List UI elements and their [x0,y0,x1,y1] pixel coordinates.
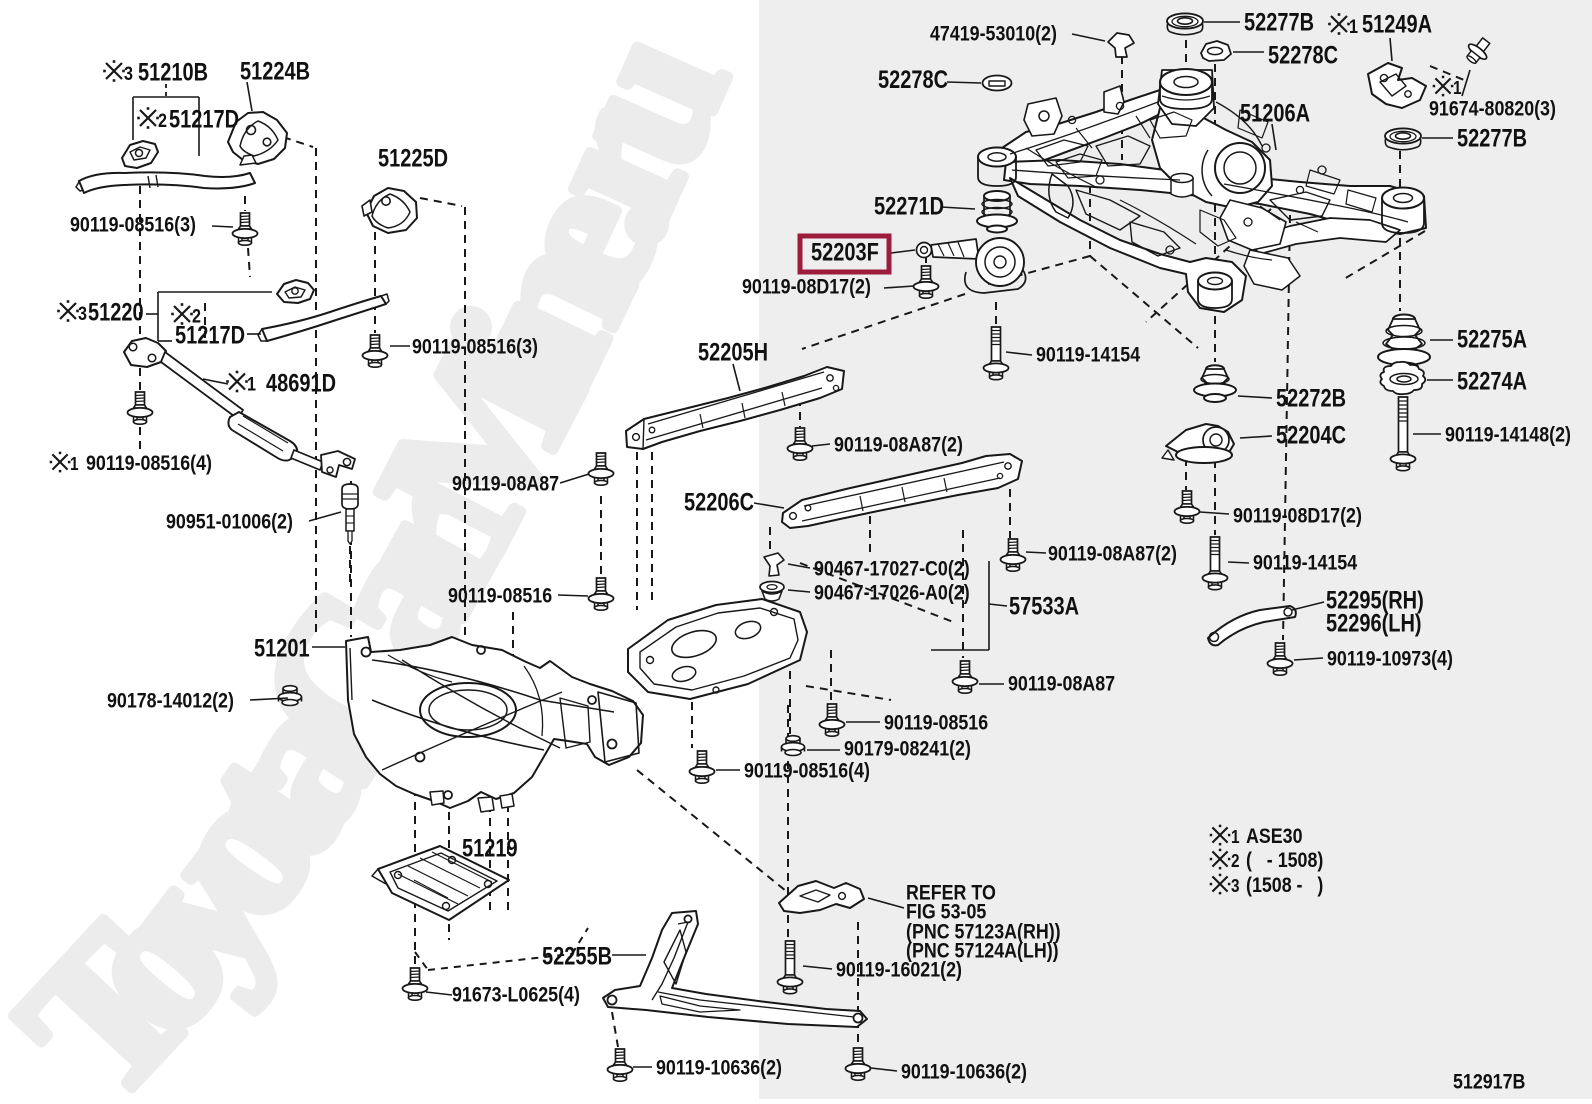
svg-text:52203F: 52203F [811,238,879,266]
svg-text:51201: 51201 [254,634,310,662]
svg-text:52277B: 52277B [1244,8,1314,36]
svg-text:1: 1 [70,454,79,474]
svg-text:51210B: 51210B [138,58,208,86]
svg-text:1: 1 [1231,827,1240,847]
svg-text:90119-08516(3): 90119-08516(3) [412,335,538,359]
svg-text:90119-10636(2): 90119-10636(2) [656,1056,782,1080]
svg-text:1: 1 [1349,16,1358,38]
svg-text:90951-01006(2): 90951-01006(2) [166,510,293,534]
svg-text:3: 3 [124,63,133,85]
svg-text:ASE30: ASE30 [1246,825,1303,849]
svg-text:91674-80820(3): 91674-80820(3) [1429,97,1556,121]
svg-text:52278C: 52278C [1268,41,1338,69]
svg-text:3: 3 [78,303,87,325]
svg-text:512917B: 512917B [1453,1070,1525,1094]
svg-text:90467-17027-C0(2): 90467-17027-C0(2) [814,557,970,581]
svg-text:52278C: 52278C [878,66,948,94]
svg-text:90119-14148(2): 90119-14148(2) [1445,423,1571,447]
svg-text:90119-10973(4): 90119-10973(4) [1327,647,1453,671]
svg-text:2: 2 [1231,851,1240,871]
svg-text:47419-53010(2): 47419-53010(2) [930,22,1057,46]
svg-text:90119-08D17(2): 90119-08D17(2) [1233,504,1362,528]
svg-text:90119-08A87: 90119-08A87 [1008,672,1115,696]
svg-text:(1508 - ): (1508 - ) [1246,874,1323,898]
svg-text:90119-08516: 90119-08516 [884,711,988,735]
svg-text:51217D: 51217D [169,105,239,133]
svg-text:52206C: 52206C [684,488,754,516]
svg-text:90119-08516: 90119-08516 [448,584,552,608]
svg-text:52205H: 52205H [698,338,768,366]
svg-text:51217D: 51217D [175,321,245,349]
svg-text:90119-08516(4): 90119-08516(4) [86,452,212,476]
svg-text:90119-08A87(2): 90119-08A87(2) [834,433,963,457]
svg-text:57533A: 57533A [1009,592,1079,620]
svg-text:2: 2 [158,110,167,132]
svg-text:90119-14154: 90119-14154 [1036,343,1140,367]
svg-text:90119-08A87(2): 90119-08A87(2) [1048,542,1177,566]
svg-text:90467-17026-A0(2): 90467-17026-A0(2) [814,581,970,605]
svg-text:52204C: 52204C [1276,421,1346,449]
svg-text:( - 1508): ( - 1508) [1246,849,1323,873]
svg-text:51224B: 51224B [240,57,310,85]
svg-text:52272B: 52272B [1276,384,1346,412]
svg-text:90119-08A87: 90119-08A87 [452,472,559,496]
svg-text:51219: 51219 [462,834,518,862]
svg-text:51206A: 51206A [1240,99,1310,127]
svg-text:52277B: 52277B [1457,124,1527,152]
svg-text:90179-08241(2): 90179-08241(2) [844,737,971,761]
svg-text:52255B: 52255B [542,942,612,970]
svg-text:52271D: 52271D [874,192,944,220]
svg-text:90119-08516(3): 90119-08516(3) [70,213,196,237]
svg-text:91673-L0625(4): 91673-L0625(4) [452,983,580,1007]
svg-text:52275A: 52275A [1457,325,1527,353]
svg-text:1: 1 [247,373,256,395]
svg-text:52274A: 52274A [1457,367,1527,395]
svg-text:(PNC 57124A(LH)): (PNC 57124A(LH)) [906,939,1059,963]
svg-text:90178-14012(2): 90178-14012(2) [107,689,234,713]
svg-text:51225D: 51225D [378,144,448,172]
svg-text:90119-10636(2): 90119-10636(2) [901,1060,1027,1084]
svg-text:51249A: 51249A [1362,10,1432,38]
svg-text:90119-14154: 90119-14154 [1253,551,1357,575]
svg-text:3: 3 [1231,876,1240,896]
svg-text:90119-08D17(2): 90119-08D17(2) [742,275,871,299]
svg-text:90119-08516(4): 90119-08516(4) [744,759,870,783]
svg-text:51220: 51220 [88,298,144,326]
svg-text:48691D: 48691D [266,369,336,397]
svg-text:52296(LH): 52296(LH) [1326,609,1422,637]
svg-text:1: 1 [1453,78,1462,98]
